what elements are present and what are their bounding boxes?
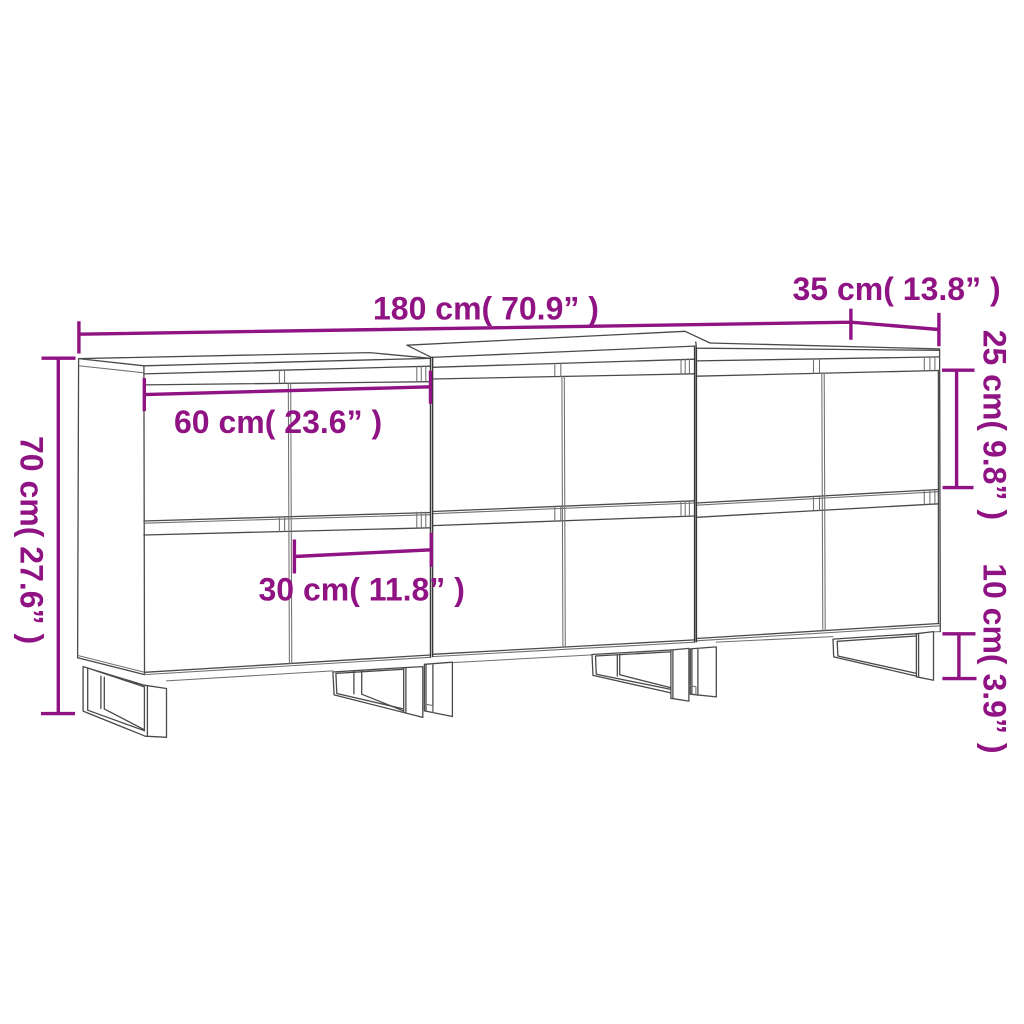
svg-text:30 cm( 11.8” ): 30 cm( 11.8” ) <box>259 572 465 608</box>
svg-text:10 cm( 3.9” ): 10 cm( 3.9” ) <box>977 563 1013 753</box>
svg-text:60 cm( 23.6” ): 60 cm( 23.6” ) <box>174 404 382 440</box>
svg-text:70 cm( 27.6” ): 70 cm( 27.6” ) <box>14 436 50 644</box>
svg-text:180 cm( 70.9” ): 180 cm( 70.9” ) <box>373 290 599 326</box>
svg-text:25 cm( 9.8” ): 25 cm( 9.8” ) <box>977 330 1013 520</box>
svg-text:35 cm( 13.8” ): 35 cm( 13.8” ) <box>793 271 1001 307</box>
